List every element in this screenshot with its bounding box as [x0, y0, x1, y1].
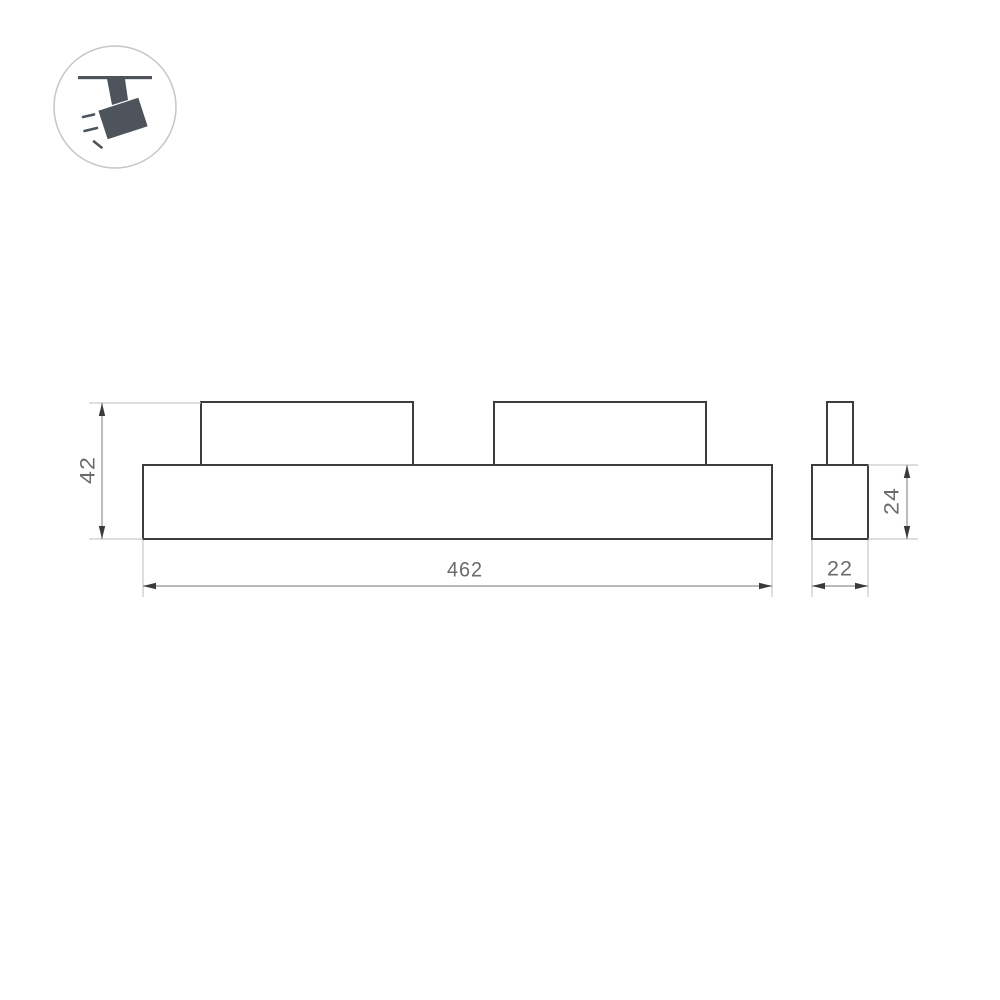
- side-view: [812, 402, 868, 539]
- dimension-label-side-height: 24: [881, 487, 904, 515]
- track-rail-icon: [78, 76, 152, 79]
- arrowhead-up-icon: [99, 403, 105, 416]
- side-housing: [812, 465, 868, 539]
- dimension-side-width: 22: [812, 540, 868, 597]
- dimension-label-length: 462: [447, 559, 483, 582]
- front-housing: [143, 465, 772, 539]
- arrowhead-down-icon: [99, 526, 105, 539]
- arrowhead-up-icon: [904, 465, 910, 478]
- side-stem: [827, 402, 853, 465]
- dimension-label-side-width: 22: [827, 558, 853, 581]
- dimension-side-height: 24: [868, 465, 918, 539]
- technical-drawing: 42 462 24 22: [0, 0, 1000, 1000]
- dimension-label-height: 42: [77, 456, 100, 484]
- front-view: [143, 402, 772, 539]
- fixture-type-icon: [54, 46, 176, 168]
- arrowhead-down-icon: [904, 526, 910, 539]
- drawing-canvas: 42 462 24 22: [0, 0, 1000, 1000]
- front-bracket-left: [201, 402, 413, 465]
- arrowhead-left-icon: [812, 583, 825, 589]
- arrowhead-right-icon: [759, 583, 772, 589]
- dimension-length: 462: [143, 540, 772, 597]
- arrowhead-right-icon: [855, 583, 868, 589]
- arrowhead-left-icon: [143, 583, 156, 589]
- front-bracket-right: [494, 402, 706, 465]
